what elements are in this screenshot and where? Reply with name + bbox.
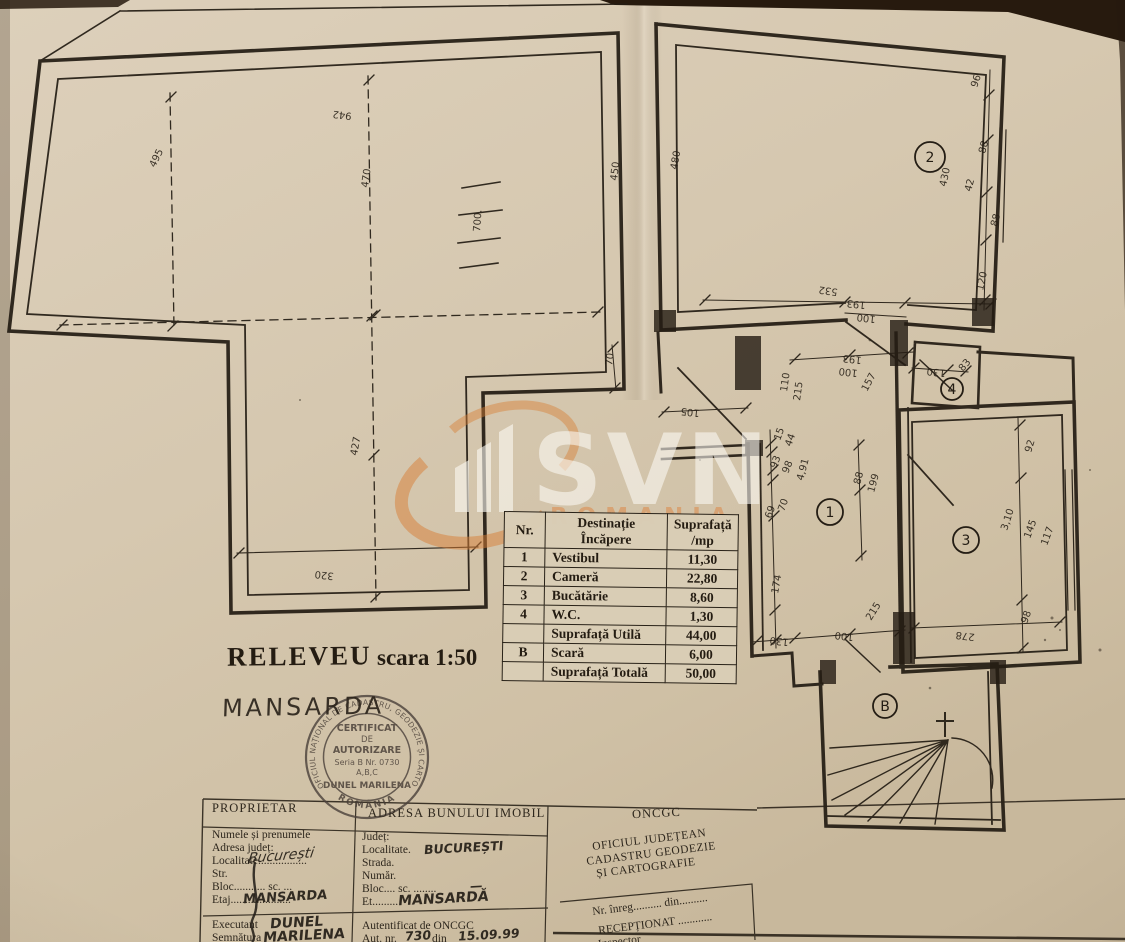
handwritten-aut-date: 15.09.99 (457, 925, 520, 942)
drawing-title: RELEVEU (227, 640, 372, 673)
table-cell (502, 662, 543, 682)
room-number: 1 (826, 505, 835, 521)
form-field-str: Str. (212, 868, 228, 880)
floor-plan-drawing: 942495470700.450480427320105709688428812… (0, 0, 1125, 942)
floor-plan-scan: 942495470700.450480427320105709688428812… (0, 0, 1125, 942)
table-cell: 4 (503, 605, 544, 625)
table-cell: W.C. (544, 605, 666, 626)
form-field-strada: Strada. (362, 857, 394, 869)
table-header-destinatie: Destinație Încăpere (545, 512, 667, 550)
room-number: B (880, 699, 890, 715)
dimension-label: 130 (926, 365, 946, 378)
form-col2-header: ADRESA BUNULUI IMOBIL (368, 806, 545, 821)
dimension-label: 450 (609, 161, 622, 181)
form-aut-nr-label: Aut. nr. (362, 933, 397, 942)
room-number: 2 (926, 150, 935, 166)
table-cell: 1 (504, 548, 545, 568)
dimension-label: 193 (842, 352, 862, 365)
dimension-label: 278 (955, 629, 975, 642)
table-cell: 1,30 (666, 607, 737, 627)
table-cell: Cameră (544, 567, 666, 588)
table-cell: 6,00 (665, 645, 736, 665)
form-field-numele: Numele și prenumele (212, 829, 310, 841)
stamp-line3: AUTORIZARE (333, 745, 401, 756)
dimension-label: 100 (838, 365, 858, 378)
dimension-label: 193 (846, 297, 866, 310)
table-cell: B (502, 643, 543, 663)
drawing-scale: scara 1:50 (377, 645, 477, 671)
stamp-line4: Seria B Nr. 0730 (335, 758, 400, 767)
room-number: 4 (948, 382, 957, 398)
handwritten-aut-nr: 730 (404, 927, 431, 942)
form-col3-header: ONCGC (632, 805, 681, 823)
stamp-line5: A,B,C (356, 768, 378, 777)
stamp-line1: CERTIFICAT (337, 723, 398, 734)
form-label-executant: Executant (212, 919, 258, 931)
table-cell: 3 (503, 586, 544, 606)
form-field-et: Et......... (362, 896, 398, 908)
table-row: Suprafață Totală50,00 (502, 662, 736, 684)
stamp-line6: DUNEL MARILENA (323, 781, 411, 791)
room-number: 3 (962, 533, 971, 549)
form-field-judet: Județ: (362, 831, 389, 843)
table-cell: Vestibul (545, 548, 667, 569)
dimension-label: 100 (834, 629, 854, 642)
room-area-table: Nr. Destinație Încăpere Suprafață /mp 1V… (502, 511, 739, 684)
floor-label: MANSARDA (222, 692, 385, 723)
form-col1-header: PROPRIETAR (212, 801, 297, 816)
table-cell: 2 (503, 567, 544, 587)
table-cell: 44,00 (666, 626, 737, 646)
dimension-label: 320 (314, 568, 334, 581)
form-field-numar: Număr. (362, 870, 396, 882)
table-cell: Suprafață Utilă (544, 624, 666, 645)
dimension-label: 130 (769, 634, 789, 647)
table-cell: 50,00 (665, 664, 736, 684)
table-cell (503, 624, 544, 644)
form-aut-din-label: din (432, 933, 447, 942)
table-cell: 8,60 (666, 588, 737, 608)
table-cell: Bucătărie (544, 586, 666, 607)
dimension-label: 700. (472, 209, 485, 232)
table-header-suprafata: Suprafață /mp (667, 514, 738, 551)
form-field-localitate2: Localitate. (362, 844, 411, 856)
table-cell: Suprafață Totală (543, 662, 665, 683)
table-cell: Scară (543, 643, 665, 664)
table-header-nr: Nr. (504, 512, 545, 549)
dimension-label: 100 (856, 311, 876, 324)
dimension-label: 942 (332, 108, 352, 121)
form-label-semnatura: Semnătura (212, 932, 261, 942)
stamp-line2: DE (361, 735, 373, 745)
dimension-label: 70 (604, 352, 617, 366)
table-cell: 11,30 (667, 550, 738, 570)
table-cell: 22,80 (666, 569, 737, 589)
